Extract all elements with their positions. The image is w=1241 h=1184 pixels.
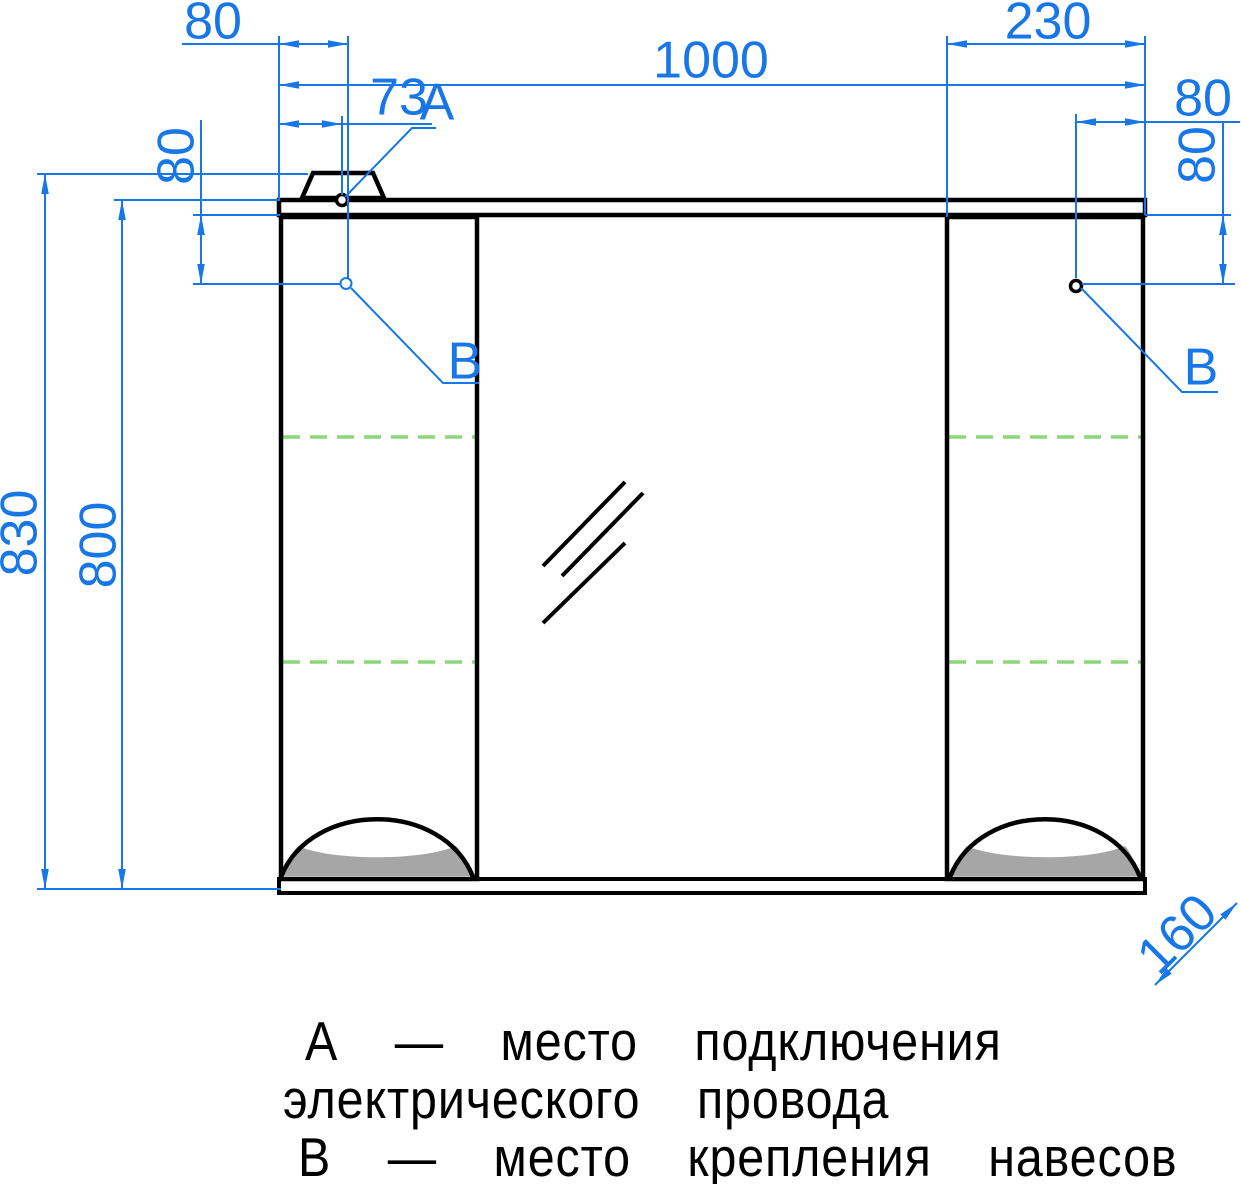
lamp-shade-left [283, 846, 471, 876]
point-b-right-label: В [1184, 339, 1219, 397]
dim-text-80-left-vertical: 80 [148, 127, 206, 185]
cabinet-structure [279, 173, 1145, 893]
right-cabinet [947, 217, 1143, 879]
arrowhead [1219, 215, 1227, 235]
point-b-left-label: В [448, 333, 483, 391]
legend-line-1: А — место подключения [305, 1010, 1002, 1072]
dim-text-800: 800 [70, 502, 128, 589]
shelf-lines [283, 437, 1141, 662]
dim-text-1000: 1000 [653, 32, 769, 90]
dimension-arrowheads [41, 40, 1237, 985]
arrowhead [1219, 264, 1227, 284]
technical-drawing-page: 80 73 А 1000 230 80 80 80 830 800 160 В … [0, 0, 1241, 1184]
arrowhead [118, 200, 126, 220]
arrowhead [328, 40, 348, 48]
dim-text-80-top: 80 [184, 0, 242, 51]
dimension-lines [37, 36, 1240, 985]
arrowhead [1125, 81, 1145, 89]
mirror-cabinet-drawing: 80 73 А 1000 230 80 80 80 830 800 160 В … [0, 0, 1241, 1184]
dim-text-160-depth: 160 [1126, 883, 1228, 985]
lamp-shade-fills [283, 846, 1138, 876]
dim-text-80-right: 80 [1174, 70, 1232, 128]
legend: А — место подключения электрического про… [283, 1010, 1177, 1184]
arrowhead [1125, 118, 1145, 126]
arrowhead [322, 120, 342, 128]
arrowhead [279, 81, 299, 89]
point-b-left-marker [341, 278, 352, 289]
cabinet-top-panel [279, 200, 1145, 215]
arrowhead [1076, 118, 1096, 126]
arrowhead [197, 215, 205, 235]
arrowhead [197, 264, 205, 284]
arrowhead [947, 40, 967, 48]
point-a-label: А [420, 74, 455, 132]
dim-text-80-right-vertical: 80 [1169, 126, 1227, 184]
arrowhead [118, 869, 126, 889]
arrowhead [41, 869, 49, 889]
arrowhead [1125, 40, 1145, 48]
point-b-right-marker [1071, 281, 1082, 292]
leader-point-a [345, 128, 436, 197]
legend-line-3: В — место крепления навесов [298, 1126, 1177, 1184]
arrowhead [41, 174, 49, 194]
arrowhead [279, 120, 299, 128]
dim-text-230: 230 [1005, 0, 1092, 51]
lamp-shade-right [952, 846, 1138, 876]
legend-line-2: электрического провода [283, 1068, 889, 1130]
dim-text-830: 830 [0, 490, 49, 577]
arrowhead [279, 40, 299, 48]
